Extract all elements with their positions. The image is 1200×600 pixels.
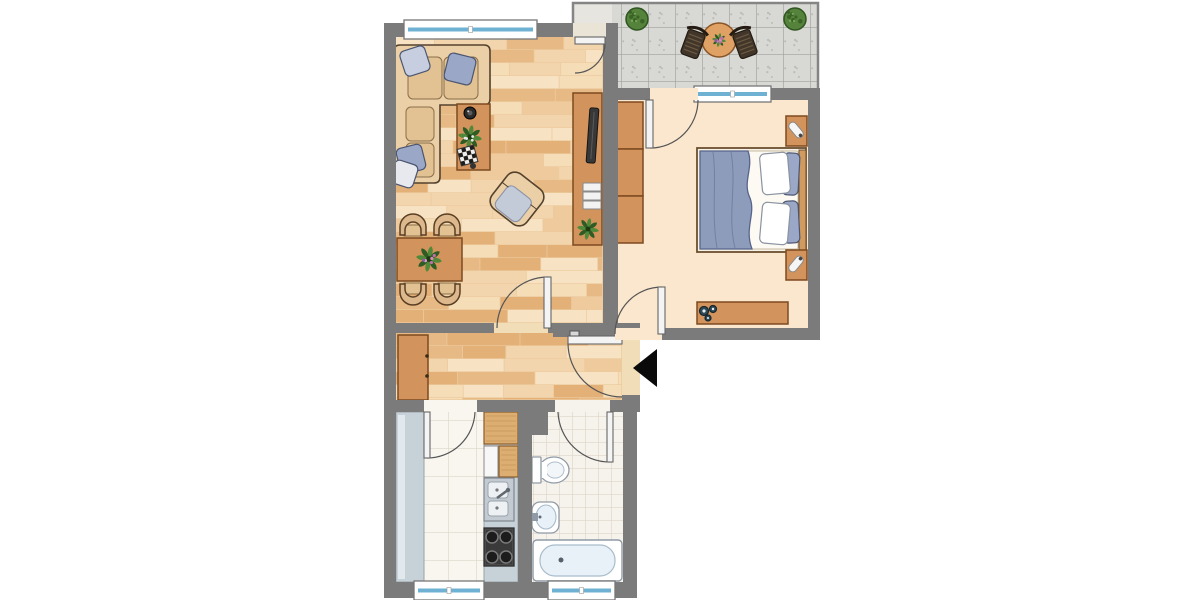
dining-chair-1 [400, 214, 426, 236]
wall-bath-duct [532, 402, 548, 435]
wall-bedroom-top-left [603, 88, 650, 100]
wall-kitchen-bath [518, 402, 532, 583]
wall-outer-left-lower [384, 333, 396, 598]
kitchen-window [414, 581, 484, 600]
wall-bedroom-right [808, 88, 820, 340]
living-room-window [404, 20, 537, 39]
balcony-plant-right [784, 8, 806, 30]
dresser [697, 302, 788, 324]
kitchen-wall-cabinet [484, 412, 518, 444]
kitchen-white-cabinet [484, 446, 498, 477]
double-bed [697, 148, 806, 252]
dining-chair-3 [400, 283, 426, 305]
wardrobe-section-3 [615, 196, 643, 243]
wall-bath-right [623, 402, 637, 598]
toilet [532, 457, 569, 483]
bathroom-sink [532, 502, 559, 533]
floor-plan-canvas [0, 0, 1200, 600]
wall-outer-left-upper [384, 23, 396, 333]
sideboard-shelves [583, 183, 601, 209]
dining-chair-4 [434, 283, 460, 305]
wall-living-bottom-left [384, 323, 494, 333]
bathtub [533, 540, 622, 581]
wall-bottom-mid [478, 582, 553, 598]
decor-dot [470, 163, 476, 169]
balcony-plant-left [626, 8, 648, 30]
floor-plan [0, 0, 1200, 600]
stove [484, 528, 514, 566]
chessboard [457, 145, 478, 166]
wardrobe-section-1 [615, 102, 643, 149]
wardrobe-section-2 [615, 149, 643, 196]
dining-chair-2 [434, 214, 460, 236]
bedroom-window [694, 86, 771, 102]
wall-bedroom-bottom [662, 328, 820, 340]
wall-living-bedroom [603, 23, 618, 340]
kitchen-sink [484, 478, 514, 521]
decor-bowl [464, 107, 476, 119]
bathroom-window [548, 581, 615, 600]
kitchen-counter-left [396, 412, 424, 582]
hall-closet [398, 335, 429, 400]
kitchen-wood-cabinet-2 [499, 446, 518, 477]
